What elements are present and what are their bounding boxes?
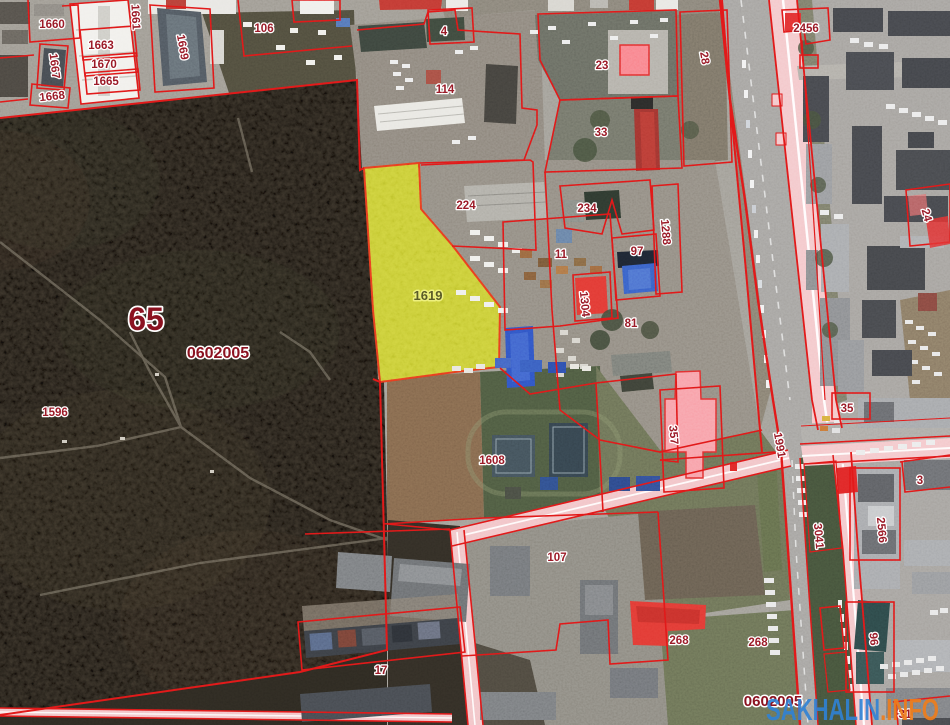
svg-text:1660: 1660 xyxy=(39,19,65,31)
svg-text:234: 234 xyxy=(577,203,597,215)
svg-text:11: 11 xyxy=(555,249,568,261)
svg-text:114: 114 xyxy=(436,84,455,96)
svg-text:1304: 1304 xyxy=(577,291,591,318)
svg-text:268: 268 xyxy=(748,637,768,649)
svg-text:23: 23 xyxy=(596,60,609,72)
svg-text:1596: 1596 xyxy=(42,407,68,419)
svg-text:35: 35 xyxy=(841,403,854,415)
svg-text:1665: 1665 xyxy=(93,76,119,88)
svg-text:268: 268 xyxy=(669,635,689,647)
svg-text:107: 107 xyxy=(547,552,566,564)
svg-text:224: 224 xyxy=(456,200,476,212)
svg-text:1670: 1670 xyxy=(91,59,117,71)
svg-text:106: 106 xyxy=(254,23,273,35)
svg-text:1663: 1663 xyxy=(88,40,114,52)
svg-text:0602005: 0602005 xyxy=(187,345,249,362)
svg-text:33: 33 xyxy=(595,127,608,139)
svg-text:357: 357 xyxy=(666,425,680,445)
svg-text:1608: 1608 xyxy=(479,455,505,467)
svg-text:SAKHALIN.INFO: SAKHALIN.INFO xyxy=(766,692,939,725)
svg-text:1288: 1288 xyxy=(658,219,672,246)
svg-text:3041: 3041 xyxy=(811,523,825,550)
svg-text:1619: 1619 xyxy=(414,288,443,303)
svg-text:2566: 2566 xyxy=(874,517,888,544)
svg-text:97: 97 xyxy=(631,246,644,258)
svg-text:4: 4 xyxy=(441,26,448,38)
svg-text:65: 65 xyxy=(128,301,164,337)
svg-text:17: 17 xyxy=(375,665,388,677)
svg-text:81: 81 xyxy=(625,318,638,330)
svg-text:96: 96 xyxy=(866,632,879,646)
svg-text:2456: 2456 xyxy=(793,23,819,35)
svg-text:1661: 1661 xyxy=(128,4,141,31)
svg-text:3: 3 xyxy=(917,475,923,487)
